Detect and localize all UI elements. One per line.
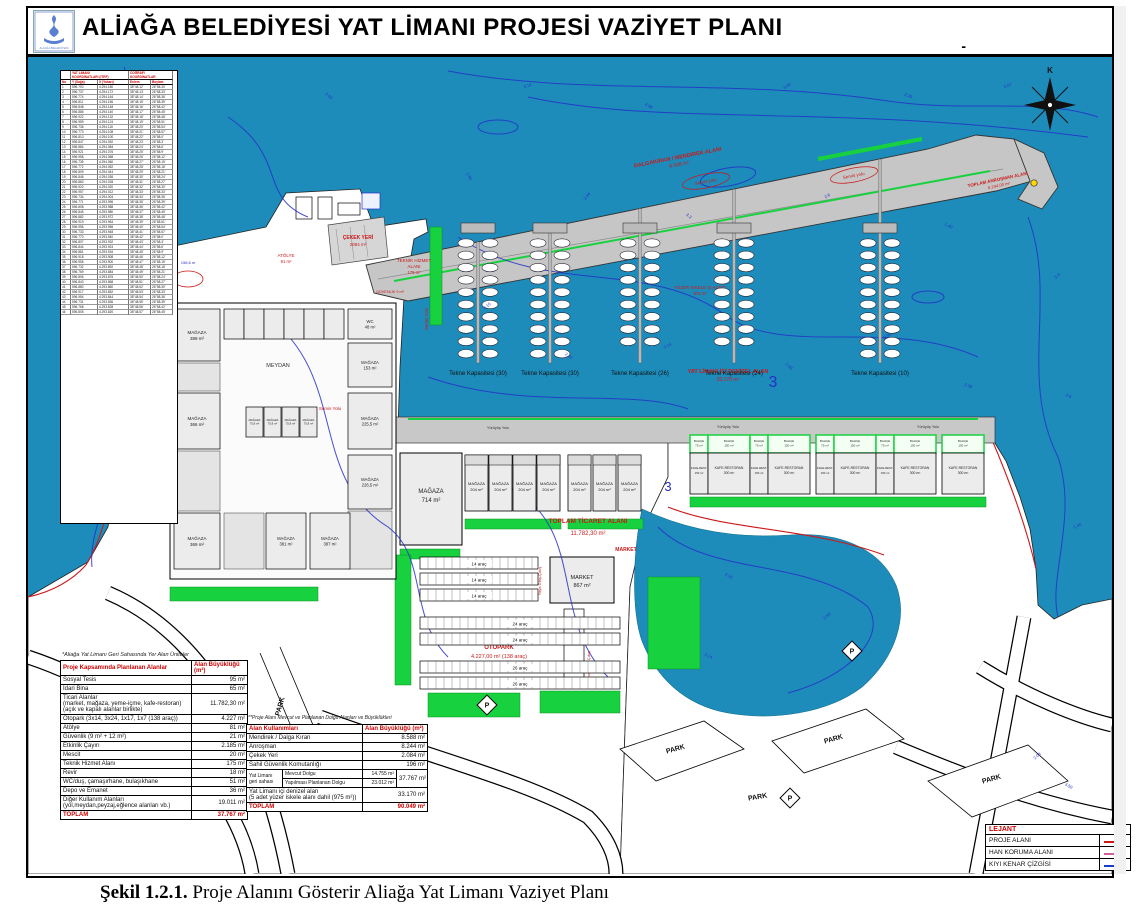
boat-icon — [860, 239, 876, 247]
area-label: Anroşman — [247, 743, 363, 752]
corner-mark: - — [961, 38, 966, 54]
boat-icon — [482, 288, 498, 296]
pier-deck — [477, 242, 480, 363]
promenade-label: Yürüyüş Yolu — [917, 425, 939, 429]
legend-item-label: HAN KORUMA ALANI — [986, 847, 1099, 858]
area-label: Revir — [61, 769, 192, 778]
area-value: 65 m² — [192, 685, 248, 694]
t2-total-label: TOPLAM — [247, 803, 363, 812]
shop-unit-label: MAĞAZA153 m² — [361, 360, 379, 370]
table-row: Sosyal Tesis95 m² — [61, 676, 248, 685]
shop-unit-label: MAĞAZA204 m² — [571, 481, 588, 492]
drawing-frame: ALİAĞA BELEDİYESİ ALİAĞA BELEDİYESİ YAT … — [26, 6, 1114, 878]
boat-icon — [644, 337, 660, 345]
pier-head — [461, 223, 495, 233]
technical-area-label: TEKNİK HİZMET — [397, 257, 432, 263]
coord-cell: YAT LİMANI KOORDİNATLARI (ITRF) — [71, 71, 129, 80]
commerce-total-label: TOPLAM TİCARET ALANI — [549, 517, 628, 525]
boat-icon — [482, 350, 498, 358]
boat-icon — [482, 325, 498, 333]
anchor-marker-icon — [1031, 180, 1037, 186]
boat-icon — [554, 251, 570, 259]
shop-unit-label: MAĞAZA204 m² — [468, 481, 485, 492]
boat-icon — [714, 239, 730, 247]
shop-unit — [324, 309, 344, 339]
boat-icon — [482, 276, 498, 284]
pier-head — [863, 223, 897, 233]
boat-icon — [884, 251, 900, 259]
area-value: 11.782,30 m² — [192, 694, 248, 715]
figure-caption: Şekil 1.2.1. Proje Alanını Gösterir Alia… — [100, 882, 609, 904]
area-value: 36 m² — [192, 787, 248, 796]
shop-unit — [284, 309, 304, 339]
area-value: 21 m² — [192, 733, 248, 742]
boat-icon — [714, 337, 730, 345]
parking-label: OTOPARK — [484, 645, 514, 651]
boat-icon — [884, 239, 900, 247]
boat-icon — [738, 288, 754, 296]
boat-icon — [644, 300, 660, 308]
table2-note: **Proje Alanı Mevcut ve Planlanan Dolgu … — [248, 715, 392, 721]
boat-icon — [860, 288, 876, 296]
area-label: Otopark (3x14, 3x24, 1x17, 1x7 (138 araç… — [61, 715, 192, 724]
boat-icon — [482, 337, 498, 345]
shop-unit-label: MAĞAZA204 m² — [492, 481, 509, 492]
area-label: Teknik Hizmet Alanı — [61, 760, 192, 769]
boat-icon — [458, 251, 474, 259]
coord-cell: 4.293.820 — [98, 310, 129, 315]
promenade-label: Yürüyüş Yolu — [717, 425, 739, 429]
boat-icon — [884, 350, 900, 358]
parking-sign-letter: P — [788, 796, 793, 803]
boat-icon — [458, 276, 474, 284]
marina-sea-area: 33.170 m² — [717, 377, 740, 383]
table-row: Etkinlik Çayırı2.185 m² — [61, 742, 248, 751]
boat-icon — [458, 263, 474, 271]
boat-icon — [860, 350, 876, 358]
boat-icon — [554, 239, 570, 247]
shop-unit-label: MAĞAZA75,8 m² — [249, 417, 261, 426]
compass-north-label: K — [1047, 66, 1053, 75]
table1-note: *Aliağa Yat Limanı Geri Sahasında Yer Al… — [62, 652, 189, 658]
boat-icon — [530, 263, 546, 271]
shop-unit-label: MAĞAZA75,8 m² — [285, 417, 297, 426]
coord-cell: COĞRAFİ KOORDİNATLAR — [129, 71, 173, 80]
boat-icon — [458, 325, 474, 333]
boat-icon — [530, 239, 546, 247]
area-label: Atölye — [61, 724, 192, 733]
parking-count-label: 14 araç — [471, 578, 487, 583]
pier-capacity-label: Tekne Kapasitesi (10) — [851, 371, 909, 377]
boat-icon — [860, 325, 876, 333]
boat-icon — [884, 313, 900, 321]
coord-cell: 596.805 — [71, 310, 98, 315]
parking-count-label: 26 araç — [512, 666, 528, 671]
parking-sign-letter: P — [850, 649, 855, 656]
boat-icon — [738, 239, 754, 247]
parking-area: 4.227,00 m² (138 araç) — [471, 654, 527, 660]
boat-icon — [860, 276, 876, 284]
technical-area-value: 175 m² — [407, 270, 421, 275]
legend-title: LEJANT — [986, 825, 1130, 835]
fill-sub-label: Mevcut Dolgu — [283, 770, 363, 779]
shop-unit-label: MAĞAZA226,5 m² — [361, 477, 379, 487]
boat-icon — [620, 251, 636, 259]
boat-icon — [482, 313, 498, 321]
boat-icon — [620, 288, 636, 296]
area-value: 175 m² — [192, 760, 248, 769]
coord-cell — [61, 71, 71, 80]
table-row: Teknik Hizmet Alanı175 m² — [61, 760, 248, 769]
area-label: Mescit — [61, 751, 192, 760]
boat-icon — [714, 276, 730, 284]
boat-icon — [530, 325, 546, 333]
shop-unit-label: MAĞAZA381 m² — [277, 536, 295, 546]
boat-icon — [738, 263, 754, 271]
boat-icon — [530, 251, 546, 259]
table-row: Diğer Kullanım Alanları (yol,meydan,peyz… — [61, 796, 248, 811]
pier-capacity-label: Tekne Kapasitesi (26) — [611, 371, 669, 377]
pier-head — [533, 223, 567, 233]
garden-label: BAHÇE150 m² — [910, 439, 920, 448]
boat-icon — [714, 251, 730, 259]
shop-unit-label: MAĞAZA366 m² — [187, 415, 206, 427]
boat-icon — [482, 251, 498, 259]
boat-icon — [644, 263, 660, 271]
boat-icon — [530, 313, 546, 321]
title-bar: ALİAĞA BELEDİYESİ ALİAĞA BELEDİYESİ YAT … — [28, 8, 1112, 57]
area-value: 2.084 m² — [363, 752, 428, 761]
t2-header-2: Alan Büyüklüğü (m²) — [363, 725, 428, 734]
shop-unit-strip — [513, 455, 536, 465]
pier-head — [717, 223, 751, 233]
table-row: Ticari Alanlar (market, mağaza, yeme-içm… — [61, 694, 248, 715]
garden-label: BAHÇE150 m² — [724, 439, 734, 448]
garden-label: BAHÇE75 m² — [754, 439, 764, 448]
boat-icon — [738, 325, 754, 333]
technical-area-label2: ALANI — [407, 264, 420, 269]
coord-cell: 38°48.57' — [129, 310, 151, 315]
shop-unit-strip — [618, 455, 641, 465]
area-label: Diğer Kullanım Alanları (yol,meydan,peyz… — [61, 796, 192, 811]
boat-icon — [860, 251, 876, 259]
t1-header-1: Proje Kapsamında Planlanan Alanlar — [61, 661, 192, 676]
floating-pier-area: 975 m² — [693, 291, 707, 296]
table-row: Güvenlik (9 m² + 12 m²)21 m² — [61, 733, 248, 742]
logo-caption: ALİAĞA BELEDİYESİ — [39, 45, 68, 50]
sea-area-value: 33.170 m² — [363, 788, 428, 803]
boat-icon — [458, 313, 474, 321]
area-value: 4.227 m² — [192, 715, 248, 724]
boat-icon — [554, 337, 570, 345]
parking-count-label: 26 araç — [512, 682, 528, 687]
shop-unit-label: MAĞAZA225,5 m² — [361, 416, 379, 426]
table-row: Anroşman8.244 m² — [247, 743, 428, 752]
shop-unit-label: MAĞAZA75,8 m² — [267, 417, 279, 426]
table-row: Çekek Yeri2.084 m² — [247, 752, 428, 761]
coord-cell: 46 — [61, 310, 71, 315]
t1-total-label: TOPLAM — [61, 811, 192, 820]
table-row: Depo ve Emanet36 m² — [61, 787, 248, 796]
shop-unit-strip — [568, 455, 591, 465]
shop-unit-strip — [537, 455, 560, 465]
parking-sign-letter: P — [485, 703, 490, 710]
shop-unit — [244, 309, 264, 339]
area-label: Mendirek / Dalga Kıran — [247, 734, 363, 743]
shop-unit-label: MAĞAZA204 m² — [596, 481, 613, 492]
fill-sub-value: 14.755 m² — [363, 770, 397, 779]
boat-icon — [644, 251, 660, 259]
boat-icon — [620, 325, 636, 333]
garden-label: BAHÇE75 m² — [880, 439, 890, 448]
area-label: Sahil Güvenlik Komutanlığı — [247, 761, 363, 770]
boat-icon — [714, 263, 730, 271]
shop-unit — [224, 309, 244, 339]
table-row: Yat Limanı geri sahasıMevcut Dolgu14.755… — [247, 770, 428, 779]
pier-deck — [879, 159, 882, 363]
area-label: Etkinlik Çayırı — [61, 742, 192, 751]
t2-header-1: Alan Kullanımları — [247, 725, 363, 734]
boat-icon — [714, 300, 730, 308]
workshop-area: 81 m² — [281, 259, 292, 264]
boat-icon — [738, 276, 754, 284]
fill-areas-table: Alan Kullanımları Alan Büyüklüğü (m²) Me… — [246, 724, 427, 812]
depth-big-label: 3 — [769, 374, 778, 391]
table-row: Sahil Güvenlik Komutanlığı196 m² — [247, 761, 428, 770]
boat-icon — [458, 337, 474, 345]
shop-unit-label: MAĞAZA75,8 m² — [303, 417, 315, 426]
boat-icon — [738, 300, 754, 308]
shop-unit-label: MAĞAZA204 m² — [516, 481, 533, 492]
shop-unit — [264, 309, 284, 339]
boat-icon — [620, 263, 636, 271]
shop-unit-strip — [465, 455, 488, 465]
boat-icon — [620, 337, 636, 345]
boatyard-label: ÇEKEK YERİ — [343, 234, 374, 241]
boat-icon — [884, 288, 900, 296]
pier-deck — [733, 189, 736, 363]
sea-area-label: Yat Limanı içi denizel alan (5 adet yüze… — [247, 788, 363, 803]
table-row: Yat Limanı içi denizel alan (5 adet yüze… — [247, 788, 428, 803]
area-label: WC/duş, çamaşırhane, bulaşıkhane — [61, 778, 192, 787]
figure-caption-label: Şekil 1.2.1. — [100, 882, 188, 903]
table-row: WC/duş, çamaşırhane, bulaşıkhane51 m² — [61, 778, 248, 787]
area-label: Sosyal Tesis — [61, 676, 192, 685]
boat-icon — [458, 300, 474, 308]
area-label: Depo ve Emanet — [61, 787, 192, 796]
security-label: GÜVENLİK 9 m² — [376, 289, 405, 294]
table-row: İdari Bina65 m² — [61, 685, 248, 694]
boat-icon — [860, 263, 876, 271]
garden-label: BAHÇE75 m² — [694, 439, 704, 448]
parking-count-label: 14 araç — [471, 594, 487, 599]
boat-icon — [620, 313, 636, 321]
pier-capacity-label: Tekne Kapasitesi (24) — [705, 371, 763, 377]
pier-head — [623, 223, 657, 233]
boat-icon — [620, 239, 636, 247]
figure-caption-text: Proje Alanını Gösterir Aliağa Yat Limanı… — [188, 882, 609, 903]
boat-icon — [714, 313, 730, 321]
boat-icon — [530, 300, 546, 308]
table-row: Mendirek / Dalga Kıran8.588 m² — [247, 734, 428, 743]
area-label: Çekek Yeri — [247, 752, 363, 761]
shop-unit-label: MAĞAZA204 m² — [621, 481, 638, 492]
boat-icon — [738, 313, 754, 321]
boat-icon — [554, 325, 570, 333]
table-row: Otopark (3x14, 3x24, 1x17, 1x7 (138 araç… — [61, 715, 248, 724]
garden-label: BAHÇE150 m² — [958, 439, 968, 448]
commerce-total-area: 11.782,30 m² — [571, 531, 606, 537]
t2-total-value: 90.049 m² — [363, 803, 428, 812]
fill-sub-value: 23.012 m² — [363, 779, 397, 788]
shop-unit-label: MAĞAZA204 m² — [540, 481, 557, 492]
boat-icon — [644, 239, 660, 247]
boat-icon — [644, 288, 660, 296]
square-label: MEYDAN — [266, 363, 290, 369]
page-title: ALİAĞA BELEDİYESİ YAT LİMANI PROJESİ VAZ… — [82, 14, 783, 42]
boat-icon — [458, 239, 474, 247]
market-red-label: MARKET — [615, 547, 636, 553]
garden-label: BAHÇE150 m² — [784, 439, 794, 448]
t1-total-value: 37.767 m² — [192, 811, 248, 820]
area-value: 8.588 m² — [363, 734, 428, 743]
shop-unit-strip — [593, 455, 616, 465]
boat-icon — [714, 288, 730, 296]
backland-label: Yat Limanı geri sahası — [247, 770, 283, 788]
service-road-label: Servis Yolu — [319, 406, 342, 411]
area-value: 2.185 m² — [192, 742, 248, 751]
legend-item: PROJE ALANI — [986, 835, 1130, 847]
boat-icon — [884, 276, 900, 284]
document-page: ALİAĞA BELEDİYESİ ALİAĞA BELEDİYESİ YAT … — [0, 0, 1140, 912]
t1-header-2: Alan Büyüklüğü (m²) — [192, 661, 248, 676]
pier-capacity-label: Tekne Kapasitesi (30) — [449, 371, 507, 377]
boatyard-area: 2084 m² — [350, 242, 367, 247]
legend-item-label: PROJE ALANI — [986, 835, 1099, 846]
parking-count-label: 24 araç — [512, 638, 528, 643]
boat-icon — [620, 276, 636, 284]
boat-icon — [458, 288, 474, 296]
boat-icon — [860, 313, 876, 321]
coord-cell: 26°58.45' — [151, 310, 173, 315]
promenade-label: Yürüyüş Yolu — [487, 426, 509, 430]
area-value: 95 m² — [192, 676, 248, 685]
boat-icon — [644, 276, 660, 284]
boat-icon — [620, 300, 636, 308]
boat-icon — [884, 300, 900, 308]
fill-sub-label: Yapılması Planlanan Dolgu — [283, 779, 363, 788]
planned-areas-table: Proje Kapsamında Planlanan Alanlar Alan … — [60, 660, 247, 820]
garden-label: BAHÇE150 m² — [850, 439, 860, 448]
area-label: Ticari Alanlar (market, mağaza, yeme-içm… — [61, 694, 192, 715]
boat-icon — [554, 263, 570, 271]
shop-unit — [304, 309, 324, 339]
legend-item-label: KIYI KENAR ÇİZGİSİ — [986, 859, 1099, 870]
boat-icon — [554, 313, 570, 321]
area-value: 51 m² — [192, 778, 248, 787]
area-label: Güvenlik (9 m² + 12 m²) — [61, 733, 192, 742]
boat-icon — [530, 337, 546, 345]
parking-count-label: 24 araç — [512, 622, 528, 627]
boat-icon — [482, 239, 498, 247]
pier-deck — [549, 227, 552, 363]
boat-icon — [554, 300, 570, 308]
fill-total-value: 37.767 m² — [397, 770, 428, 788]
boat-icon — [482, 263, 498, 271]
area-value: 8.244 m² — [363, 743, 428, 752]
shop-unit-strip — [489, 455, 512, 465]
table-row: Revir18 m² — [61, 769, 248, 778]
shop-unit-label: MAĞAZA389 m² — [187, 329, 206, 341]
parking-count-label: 14 araç — [471, 562, 487, 567]
legend-item: HAN KORUMA ALANI — [986, 847, 1130, 859]
area-value: 81 m² — [192, 724, 248, 733]
municipality-logo: ALİAĞA BELEDİYESİ — [33, 10, 75, 53]
table-row: Mescit20 m² — [61, 751, 248, 760]
shop-unit-label: MAĞAZA387 m² — [321, 536, 339, 546]
workshop-label: ATÖLYE — [277, 252, 294, 258]
boat-icon — [738, 251, 754, 259]
legend: LEJANT PROJE ALANIHAN KORUMA ALANIKIYI K… — [985, 824, 1131, 871]
scan-margin — [1114, 6, 1126, 874]
area-value: 196 m² — [363, 761, 428, 770]
area-value: 18 m² — [192, 769, 248, 778]
area-value: 20 m² — [192, 751, 248, 760]
coordinate-table: YAT LİMANI KOORDİNATLARI (ITRF)COĞRAFİ K… — [60, 70, 178, 524]
boat-icon — [458, 350, 474, 358]
dimension-note: 156,6 m — [181, 260, 196, 265]
boat-icon — [884, 263, 900, 271]
boat-icon — [884, 325, 900, 333]
boat-icon — [860, 300, 876, 308]
boat-icon — [530, 288, 546, 296]
area-label: İdari Bina — [61, 685, 192, 694]
legend-item: KIYI KENAR ÇİZGİSİ — [986, 859, 1130, 870]
boat-icon — [530, 350, 546, 358]
boat-icon — [644, 325, 660, 333]
boat-icon — [554, 288, 570, 296]
service-road-vertical: Servis Yolu — [424, 307, 429, 330]
area-value: 19.011 m² — [192, 796, 248, 811]
boat-icon — [738, 337, 754, 345]
table-row: Atölye81 m² — [61, 724, 248, 733]
shop-unit-label: MAĞAZA369 m² — [187, 535, 206, 547]
boat-icon — [530, 276, 546, 284]
depth-big-label: 3 — [664, 479, 671, 494]
pier-capacity-label: Tekne Kapasitesi (30) — [521, 371, 579, 377]
boat-icon — [860, 337, 876, 345]
boat-icon — [644, 313, 660, 321]
garden-label: BAHÇE75 m² — [820, 439, 830, 448]
boat-icon — [714, 325, 730, 333]
logo-emblem-icon: ALİAĞA BELEDİYESİ — [34, 11, 74, 52]
boat-icon — [554, 276, 570, 284]
